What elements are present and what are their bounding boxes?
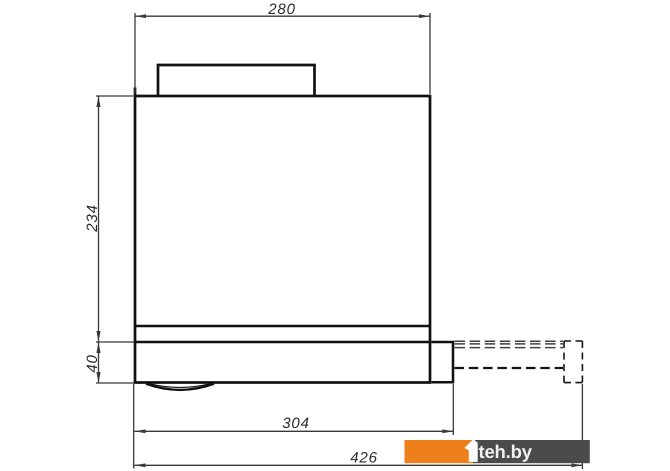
svg-text:304: 304	[282, 415, 309, 432]
svg-text:teh.by: teh.by	[479, 441, 533, 462]
svg-text:234: 234	[84, 204, 101, 232]
svg-text:280: 280	[267, 1, 295, 18]
svg-text:40: 40	[84, 354, 101, 372]
svg-text:426: 426	[350, 449, 377, 466]
